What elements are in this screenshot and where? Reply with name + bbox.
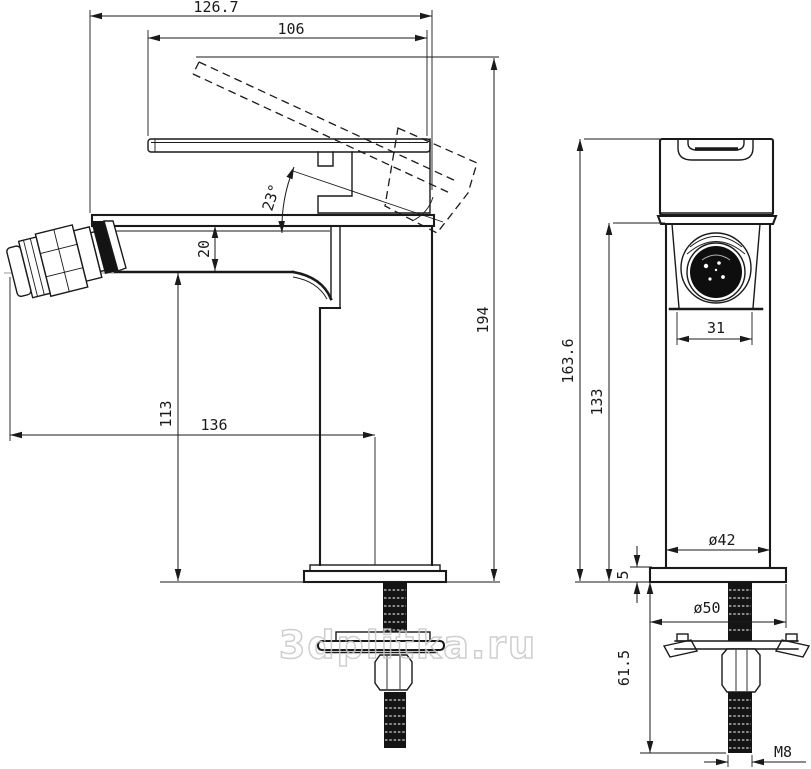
dim-stud-length: 61.5 xyxy=(615,650,633,686)
dim-base-thickness: 5 xyxy=(614,570,632,579)
front-base xyxy=(304,565,446,582)
faucet-technical-drawing: 126.7 106 136 23° 20 194 113 163.6 133 3… xyxy=(0,0,811,769)
side-mounting-nut xyxy=(722,649,760,692)
side-aerator xyxy=(681,233,751,303)
side-mounting-stud xyxy=(664,582,809,753)
dim-handle-angle: 23° xyxy=(258,182,283,213)
side-base xyxy=(650,568,786,582)
side-body-top xyxy=(658,139,776,224)
dim-thread-size: M8 xyxy=(774,743,792,761)
dim-spout-reach: 136 xyxy=(200,416,227,434)
dim-overall-height: 194 xyxy=(474,306,492,333)
dim-base-diameter: ø50 xyxy=(693,599,720,617)
front-handle-dashed-raised xyxy=(193,62,477,233)
dim-spout-body-height: 20 xyxy=(195,240,213,258)
front-column xyxy=(320,226,432,565)
dim-side-height-overall: 163.6 xyxy=(559,338,577,383)
technical-drawing-page: 126.7 106 136 23° 20 194 113 163.6 133 3… xyxy=(0,0,811,769)
side-aerator-outlet xyxy=(690,246,742,298)
dim-body-diameter: ø42 xyxy=(708,531,735,549)
dim-overall-width: 126.7 xyxy=(193,0,238,16)
dim-spout-underside-height: 113 xyxy=(157,400,175,427)
front-body-plate xyxy=(92,215,434,231)
dim-handle-length: 106 xyxy=(277,20,304,38)
dim-side-height-body: 133 xyxy=(588,388,606,415)
dim-aerator-width: 31 xyxy=(707,319,725,337)
watermark: 3dplitka.ru xyxy=(279,623,537,667)
side-view xyxy=(650,139,809,753)
